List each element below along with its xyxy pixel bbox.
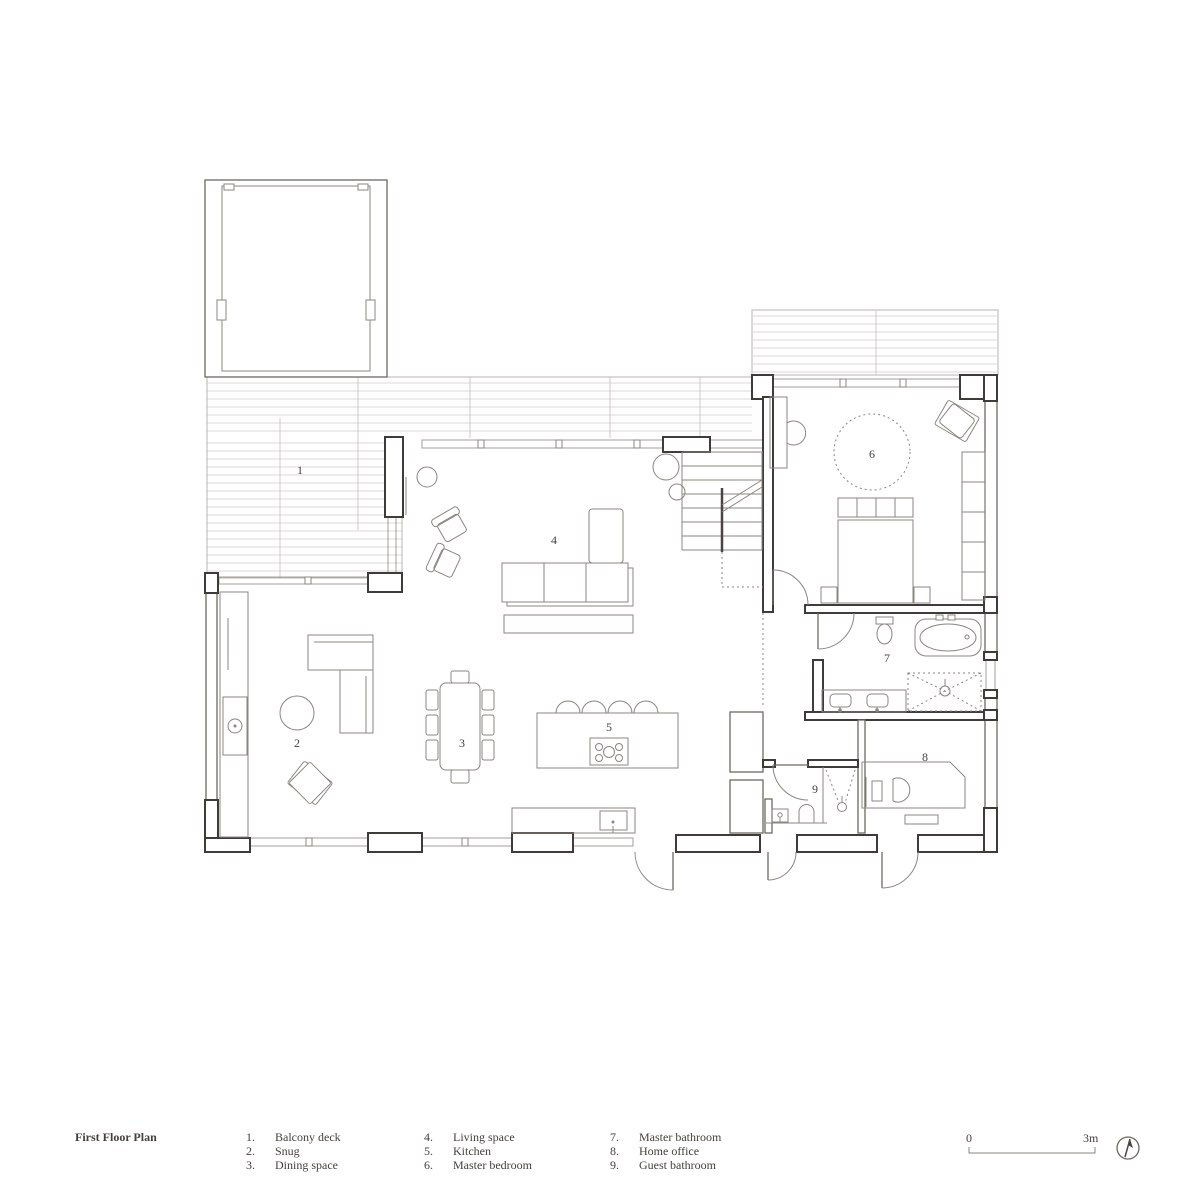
legend-number: 8. — [610, 1144, 639, 1158]
legend-number: 2. — [246, 1144, 275, 1158]
legend-name: Snug — [275, 1144, 300, 1158]
bathtub-icon — [915, 619, 981, 656]
master-bathroom-fixtures — [822, 615, 981, 713]
toilet-icon — [799, 805, 814, 824]
legend-item: 1.Balcony deck — [246, 1130, 341, 1144]
legend-number: 4. — [424, 1130, 453, 1144]
legend-column-2: 4.Living space 5.Kitchen 6.Master bedroo… — [424, 1130, 532, 1172]
legend-item: 5.Kitchen — [424, 1144, 532, 1158]
legend-name: Balcony deck — [275, 1130, 341, 1144]
room-label-snug: 2 — [294, 736, 300, 750]
legend-item: 6.Master bedroom — [424, 1158, 532, 1172]
legend-number: 7. — [610, 1130, 639, 1144]
floor-plan-page: 1 2 3 4 5 6 7 8 9 0 3m First Floor Plan … — [0, 0, 1200, 1200]
room-label-balcony-deck: 1 — [297, 463, 303, 477]
master-bedroom-furniture — [770, 397, 985, 603]
legend-item: 4.Living space — [424, 1130, 532, 1144]
room-label-master-bathroom: 7 — [884, 651, 890, 665]
outbuilding-outline — [205, 180, 387, 377]
room-label-dining: 3 — [459, 736, 465, 750]
living-space-furniture — [406, 454, 685, 633]
legend-name: Living space — [453, 1130, 515, 1144]
kitchen-furniture — [512, 701, 678, 833]
legend-column-3: 7.Master bathroom 8.Home office 9.Guest … — [610, 1130, 721, 1172]
bed-icon — [838, 520, 913, 603]
legend-name: Guest bathroom — [639, 1158, 716, 1172]
legend-item: 3.Dining space — [246, 1158, 341, 1172]
legend-number: 1. — [246, 1130, 275, 1144]
legend: First Floor Plan 1.Balcony deck 2.Snug 3… — [0, 1126, 1200, 1186]
plant-icon — [417, 467, 437, 487]
shower-icon — [908, 673, 981, 711]
legend-name: Kitchen — [453, 1144, 491, 1158]
home-office-furniture — [862, 762, 965, 824]
toilet-icon — [876, 617, 893, 624]
floor-plan-drawing: 1 2 3 4 5 6 7 8 9 0 3m — [0, 0, 1200, 1200]
plant-icon — [653, 454, 679, 480]
monitor-icon — [872, 781, 882, 801]
legend-name: Master bathroom — [639, 1130, 721, 1144]
room-label-master-bedroom: 6 — [869, 447, 875, 461]
staircase — [682, 452, 763, 587]
snug-furniture — [220, 592, 373, 837]
legend-column-1: 1.Balcony deck 2.Snug 3.Dining space — [246, 1130, 341, 1172]
legend-number: 9. — [610, 1158, 639, 1172]
legend-item: 9.Guest bathroom — [610, 1158, 721, 1172]
guest-bathroom-fixtures — [766, 767, 855, 823]
legend-item: 2.Snug — [246, 1144, 341, 1158]
legend-item: 7.Master bathroom — [610, 1130, 721, 1144]
legend-number: 5. — [424, 1144, 453, 1158]
legend-number: 6. — [424, 1158, 453, 1172]
pouf-icon — [280, 696, 314, 730]
shower-drain-icon — [838, 803, 847, 812]
room-label-living: 4 — [551, 533, 557, 547]
dining-furniture — [426, 671, 494, 783]
balcony-deck — [207, 377, 752, 578]
page-title: First Floor Plan — [75, 1130, 157, 1145]
plant-icon — [669, 484, 685, 500]
legend-name: Home office — [639, 1144, 699, 1158]
wardrobe-icon — [962, 452, 985, 600]
room-label-home-office: 8 — [922, 750, 928, 764]
bedroom-deck — [752, 310, 998, 375]
legend-number: 3. — [246, 1158, 275, 1172]
legend-name: Master bedroom — [453, 1158, 532, 1172]
room-label-kitchen: 5 — [606, 720, 612, 734]
room-label-guest-bathroom: 9 — [812, 782, 818, 796]
legend-item: 8.Home office — [610, 1144, 721, 1158]
vanity-icon — [822, 690, 906, 712]
legend-name: Dining space — [275, 1158, 338, 1172]
